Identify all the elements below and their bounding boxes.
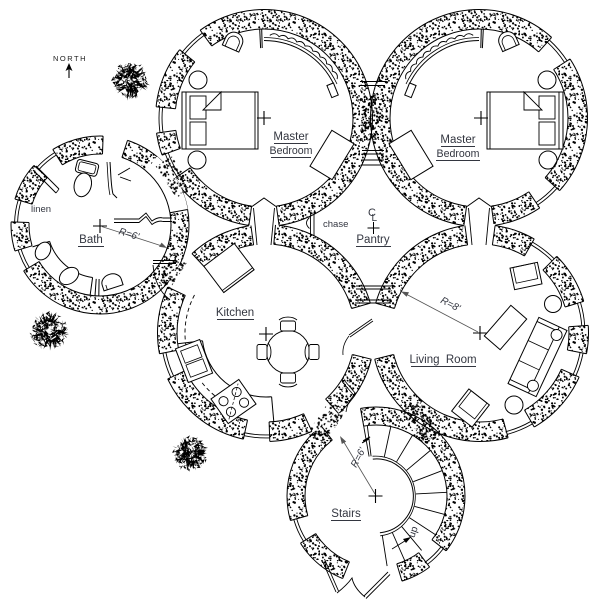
svg-text:NORTH: NORTH bbox=[53, 54, 87, 63]
svg-text:Master: Master bbox=[273, 131, 308, 143]
svg-text:Living Room: Living Room bbox=[409, 354, 476, 366]
svg-text:Bath: Bath bbox=[79, 234, 103, 246]
svg-text:Master: Master bbox=[440, 134, 475, 146]
svg-text:Stairs: Stairs bbox=[331, 508, 361, 520]
svg-text:Bedroom: Bedroom bbox=[270, 145, 313, 157]
svg-text:L: L bbox=[372, 213, 378, 224]
svg-text:Kitchen: Kitchen bbox=[216, 307, 254, 319]
svg-text:linen: linen bbox=[31, 204, 51, 215]
svg-text:chase: chase bbox=[323, 219, 348, 230]
svg-text:Bedroom: Bedroom bbox=[437, 148, 480, 160]
svg-text:Pantry: Pantry bbox=[356, 234, 389, 246]
